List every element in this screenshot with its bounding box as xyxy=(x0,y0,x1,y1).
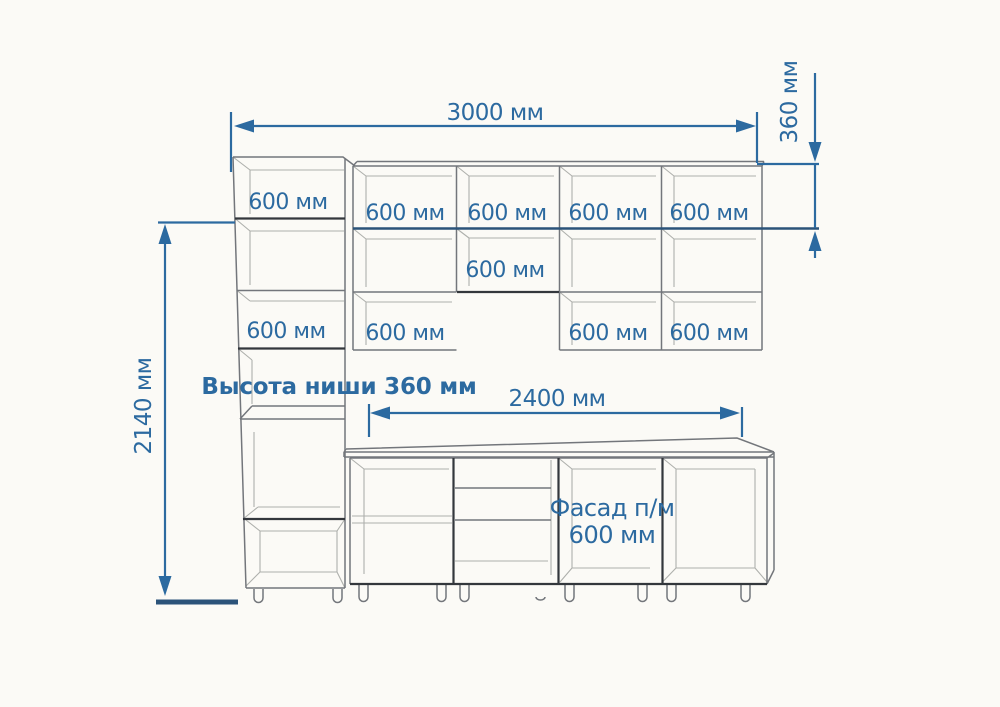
dim-total-width-label: 3000 мм xyxy=(446,100,543,126)
hood-cabinet-label: 600 мм xyxy=(465,258,544,283)
kitchen-dimension-drawing: 3000 мм 360 мм 2140 мм 2400 мм 600 мм 60… xyxy=(0,0,1000,707)
dim-base-width-label: 2400 мм xyxy=(508,386,605,412)
drawing-canvas: 3000 мм 360 мм 2140 мм 2400 мм 600 мм 60… xyxy=(0,0,1000,707)
tall-cabinet-upper-label: 600 мм xyxy=(248,190,327,215)
cabinet-width-labels: 600 мм 600 мм 600 мм 600 мм 600 мм 600 м… xyxy=(246,190,748,346)
dim-column-height-label: 2140 мм xyxy=(131,357,157,454)
facade-note-line2: 600 мм xyxy=(569,521,656,549)
wall-cabinet-4-upper-label: 600 мм xyxy=(669,201,748,226)
wall-cabinet-4-lower-label: 600 мм xyxy=(669,321,748,346)
wall-cabinet-3-upper-label: 600 мм xyxy=(568,201,647,226)
facade-note-line1: Фасад п/м xyxy=(550,494,675,522)
niche-height-note: Высота ниши 360 мм xyxy=(201,374,476,400)
dim-top-row-height-label: 360 мм xyxy=(777,61,803,144)
wall-cabinet-1-upper-label: 600 мм xyxy=(365,201,444,226)
tall-cabinet-lower-label: 600 мм xyxy=(246,319,325,344)
wall-cabinet-1-lower-label: 600 мм xyxy=(365,321,444,346)
wall-cabinet-3-lower-label: 600 мм xyxy=(568,321,647,346)
wall-cabinet-2-upper-label: 600 мм xyxy=(467,201,546,226)
